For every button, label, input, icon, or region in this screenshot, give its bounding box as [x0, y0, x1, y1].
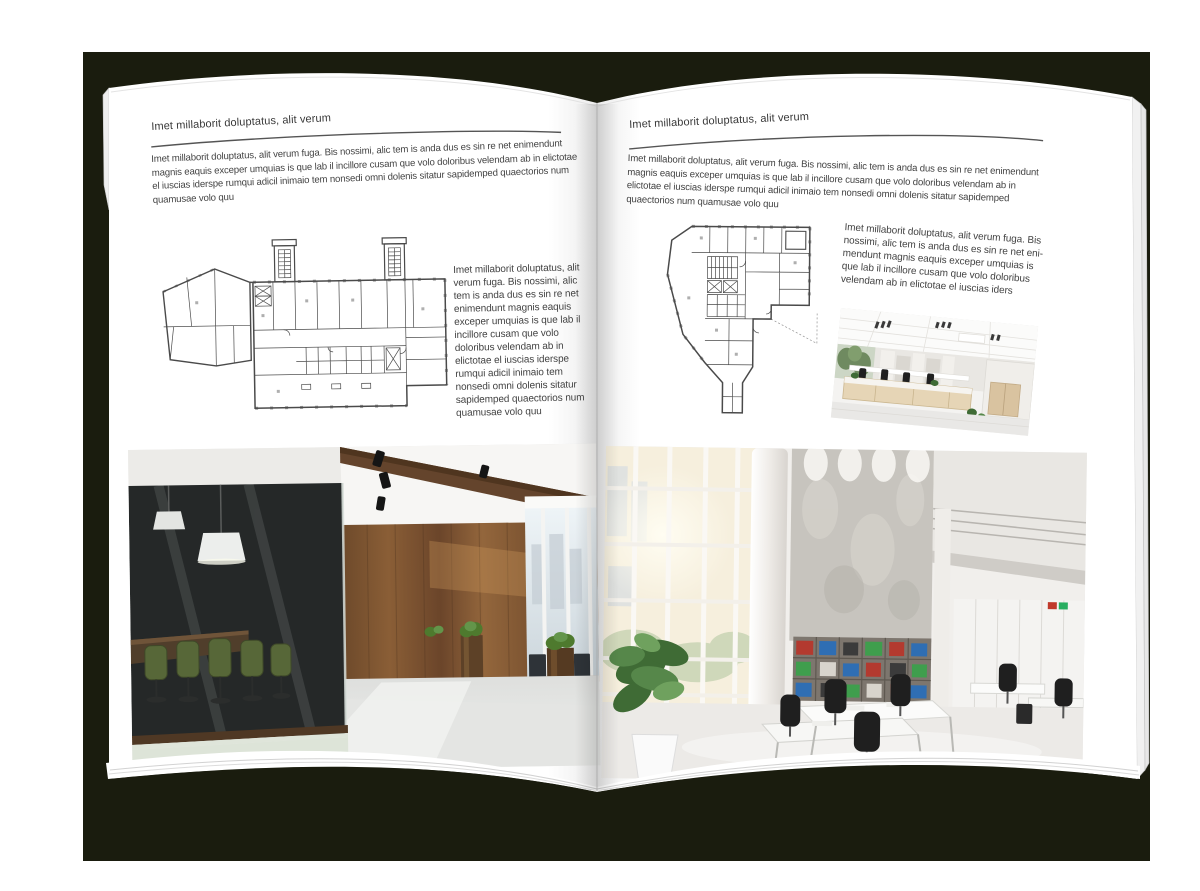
open-book-mockup: Imet millaborit doluptatus, alit verum I… — [0, 0, 1200, 891]
office-photo-small-workstations — [831, 308, 1038, 436]
floor-plan-left — [154, 227, 449, 418]
right-page-side-text: Imet millaborit doluptatus, alit verum f… — [840, 221, 1044, 300]
office-photo-atrium — [601, 446, 1087, 785]
left-page-side-text: Imet millaborit doluptatus, alit verum f… — [453, 261, 596, 420]
office-photo-dark-meeting-room — [128, 443, 600, 772]
floor-plan-right — [648, 216, 832, 418]
